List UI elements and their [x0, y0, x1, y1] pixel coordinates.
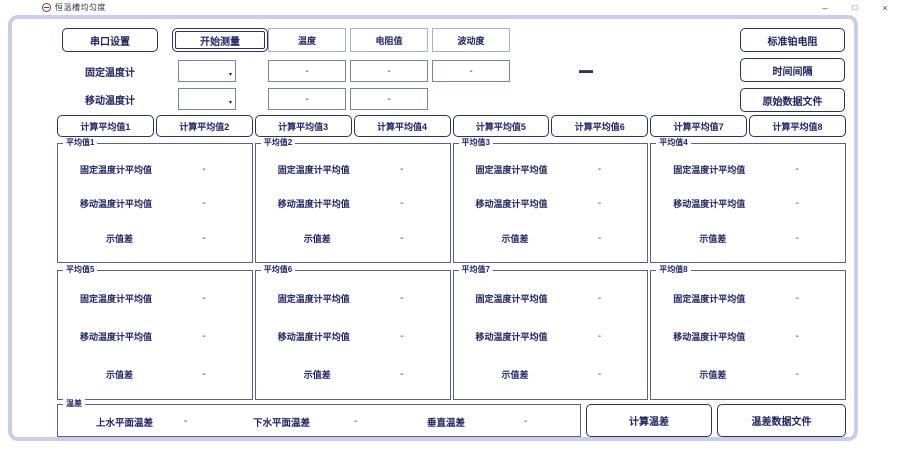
- mobile-thermometer-dropdown[interactable]: ▾: [178, 88, 236, 110]
- average-row-label: 固定温度计平均值: [476, 292, 548, 305]
- average-row-value: -: [796, 293, 799, 304]
- chevron-down-icon: ▾: [229, 99, 235, 109]
- average-group-title: 平均值5: [63, 265, 97, 275]
- fixed-thermometer-label: 固定温度计: [66, 60, 154, 82]
- vertical-diff-value: -: [524, 405, 527, 438]
- average-group-title: 平均值8: [656, 265, 690, 275]
- average-row-value: -: [400, 198, 403, 209]
- average-row-label: 示值差: [502, 232, 529, 245]
- average-group-row: 示值差-: [651, 232, 845, 245]
- average-group-row: 移动温度计平均值-: [58, 197, 252, 210]
- average-group-row: 示值差-: [651, 368, 845, 381]
- average-row-label: 移动温度计平均值: [476, 197, 548, 210]
- average-row-label: 移动温度计平均值: [673, 330, 745, 343]
- average-row-value: -: [400, 164, 403, 175]
- serial-settings-button[interactable]: 串口设置: [62, 28, 158, 52]
- average-group-title: 平均值6: [261, 265, 295, 275]
- average-row-value: -: [598, 293, 601, 304]
- average-row-value: -: [400, 293, 403, 304]
- column-header-temperature: 温度: [268, 28, 346, 52]
- average-row-label: 示值差: [106, 368, 133, 381]
- average-row-value: -: [400, 369, 403, 380]
- mobile-resistance-value: -: [350, 88, 428, 110]
- average-row-label: 移动温度计平均值: [80, 330, 152, 343]
- average-row-label: 示值差: [304, 368, 331, 381]
- minimize-button[interactable]: –: [810, 0, 840, 15]
- average-group-row: 示值差-: [454, 232, 648, 245]
- average-group-title: 平均值2: [261, 138, 295, 148]
- calc-temp-diff-button[interactable]: 计算温差: [586, 404, 712, 437]
- window-controls: – □ ×: [810, 0, 900, 15]
- average-row-value: -: [796, 233, 799, 244]
- average-row-value: -: [796, 369, 799, 380]
- raw-data-file-button[interactable]: 原始数据文件: [740, 88, 845, 112]
- average-row-value: -: [796, 198, 799, 209]
- average-group-row: 固定温度计平均值-: [651, 163, 845, 176]
- average-group-row: 固定温度计平均值-: [58, 292, 252, 305]
- mobile-temperature-value: -: [268, 88, 346, 110]
- average-group-row: 示值差-: [256, 368, 450, 381]
- average-group-title: 平均值4: [656, 138, 690, 148]
- app-window: 恒温槽均匀度 – □ × 串口设置 开始测量 温度 电阻值 波动度 标准铂电阻 …: [0, 0, 900, 450]
- average-row-label: 示值差: [502, 368, 529, 381]
- average-group-row: 移动温度计平均值-: [256, 197, 450, 210]
- average-buttons-row: 计算平均值1计算平均值2计算平均值3计算平均值4计算平均值5计算平均值6计算平均…: [57, 115, 846, 137]
- average-row-label: 固定温度计平均值: [80, 292, 152, 305]
- time-interval-button[interactable]: 时间间隔: [740, 58, 845, 82]
- average-group-1: 平均值1固定温度计平均值-移动温度计平均值-示值差-: [57, 143, 253, 263]
- temp-diff-file-button[interactable]: 温差数据文件: [717, 404, 846, 437]
- average-row-label: 移动温度计平均值: [278, 330, 350, 343]
- average-row-label: 固定温度计平均值: [278, 292, 350, 305]
- calc-average-button-6[interactable]: 计算平均值6: [551, 115, 648, 137]
- close-button[interactable]: ×: [870, 0, 900, 15]
- average-row-label: 移动温度计平均值: [278, 197, 350, 210]
- average-group-7: 平均值7固定温度计平均值-移动温度计平均值-示值差-: [453, 270, 649, 400]
- column-header-resistance: 电阻值: [350, 28, 428, 52]
- average-row-label: 固定温度计平均值: [278, 163, 350, 176]
- average-group-3: 平均值3固定温度计平均值-移动温度计平均值-示值差-: [453, 143, 649, 263]
- average-group-row: 移动温度计平均值-: [651, 197, 845, 210]
- fixed-temperature-value: -: [268, 60, 346, 82]
- average-row-label: 移动温度计平均值: [673, 197, 745, 210]
- maximize-button[interactable]: □: [840, 0, 870, 15]
- average-group-row: 示值差-: [58, 232, 252, 245]
- mobile-thermometer-label: 移动温度计: [66, 88, 154, 110]
- average-row-value: -: [598, 233, 601, 244]
- average-row-value: -: [400, 233, 403, 244]
- average-row-value: -: [202, 233, 205, 244]
- average-row-label: 固定温度计平均值: [673, 292, 745, 305]
- average-row-value: -: [202, 331, 205, 342]
- standard-platinum-resistance-button[interactable]: 标准铂电阻: [740, 28, 845, 52]
- upper-plane-diff-label: 上水平面温差: [96, 405, 153, 438]
- average-group-6: 平均值6固定温度计平均值-移动温度计平均值-示值差-: [255, 270, 451, 400]
- average-row-label: 移动温度计平均值: [476, 330, 548, 343]
- average-row-value: -: [598, 164, 601, 175]
- average-group-row: 固定温度计平均值-: [256, 292, 450, 305]
- average-group-row: 固定温度计平均值-: [256, 163, 450, 176]
- average-row-value: -: [796, 331, 799, 342]
- average-group-title: 平均值1: [63, 138, 97, 148]
- average-group-row: 移动温度计平均值-: [256, 330, 450, 343]
- lower-plane-diff-label: 下水平面温差: [253, 405, 310, 438]
- vertical-diff-label: 垂直温差: [427, 405, 465, 438]
- average-row-label: 示值差: [699, 368, 726, 381]
- average-group-row: 移动温度计平均值-: [454, 330, 648, 343]
- window-title: 恒温槽均匀度: [55, 2, 106, 13]
- average-row-label: 固定温度计平均值: [673, 163, 745, 176]
- average-group-8: 平均值8固定温度计平均值-移动温度计平均值-示值差-: [650, 270, 846, 400]
- average-group-row: 移动温度计平均值-: [58, 330, 252, 343]
- calc-average-button-7[interactable]: 计算平均值7: [650, 115, 747, 137]
- titlebar: 恒温槽均匀度 – □ ×: [0, 0, 900, 15]
- calc-average-button-3[interactable]: 计算平均值3: [255, 115, 352, 137]
- average-group-4: 平均值4固定温度计平均值-移动温度计平均值-示值差-: [650, 143, 846, 263]
- average-group-row: 示值差-: [256, 232, 450, 245]
- average-groups-grid: 平均值1固定温度计平均值-移动温度计平均值-示值差-平均值2固定温度计平均值-移…: [57, 143, 846, 399]
- calc-average-button-8[interactable]: 计算平均值8: [749, 115, 846, 137]
- calc-average-button-2[interactable]: 计算平均值2: [156, 115, 253, 137]
- average-row-value: -: [598, 331, 601, 342]
- average-row-value: -: [598, 369, 601, 380]
- average-group-title: 平均值3: [459, 138, 493, 148]
- average-row-label: 移动温度计平均值: [80, 197, 152, 210]
- average-group-row: 移动温度计平均值-: [454, 197, 648, 210]
- average-row-value: -: [202, 164, 205, 175]
- app-icon: [42, 3, 51, 12]
- average-group-row: 固定温度计平均值-: [454, 163, 648, 176]
- fixed-fluctuation-value: -: [432, 60, 510, 82]
- lower-plane-diff-value: -: [354, 405, 357, 438]
- titlebar-left: 恒温槽均匀度: [0, 2, 106, 13]
- average-row-value: -: [202, 198, 205, 209]
- average-row-value: -: [202, 369, 205, 380]
- average-group-row: 示值差-: [58, 368, 252, 381]
- calc-average-button-5[interactable]: 计算平均值5: [453, 115, 550, 137]
- fixed-resistance-value: -: [350, 60, 428, 82]
- average-row-value: -: [400, 331, 403, 342]
- average-row-label: 固定温度计平均值: [476, 163, 548, 176]
- start-measure-button[interactable]: 开始测量: [172, 28, 268, 52]
- average-row-value: -: [796, 164, 799, 175]
- column-header-fluctuation: 波动度: [432, 28, 510, 52]
- average-group-5: 平均值5固定温度计平均值-移动温度计平均值-示值差-: [57, 270, 253, 400]
- average-row-label: 固定温度计平均值: [80, 163, 152, 176]
- average-row-label: 示值差: [699, 232, 726, 245]
- average-row-value: -: [598, 198, 601, 209]
- fixed-thermometer-dropdown[interactable]: ▾: [178, 60, 236, 82]
- upper-plane-diff-value: -: [184, 405, 187, 438]
- temp-diff-group: 温差 上水平面温差 - 下水平面温差 - 垂直温差 -: [57, 404, 581, 437]
- fixed-indicator-dash: [576, 60, 596, 82]
- chevron-down-icon: ▾: [229, 71, 235, 81]
- average-row-label: 示值差: [304, 232, 331, 245]
- average-row-value: -: [202, 293, 205, 304]
- average-group-row: 移动温度计平均值-: [651, 330, 845, 343]
- average-group-row: 固定温度计平均值-: [454, 292, 648, 305]
- calc-average-button-4[interactable]: 计算平均值4: [354, 115, 451, 137]
- average-group-row: 固定温度计平均值-: [651, 292, 845, 305]
- average-group-row: 示值差-: [454, 368, 648, 381]
- average-group-title: 平均值7: [459, 265, 493, 275]
- calc-average-button-1[interactable]: 计算平均值1: [57, 115, 154, 137]
- average-row-label: 示值差: [106, 232, 133, 245]
- average-group-2: 平均值2固定温度计平均值-移动温度计平均值-示值差-: [255, 143, 451, 263]
- temp-diff-group-title: 温差: [63, 399, 85, 409]
- average-group-row: 固定温度计平均值-: [58, 163, 252, 176]
